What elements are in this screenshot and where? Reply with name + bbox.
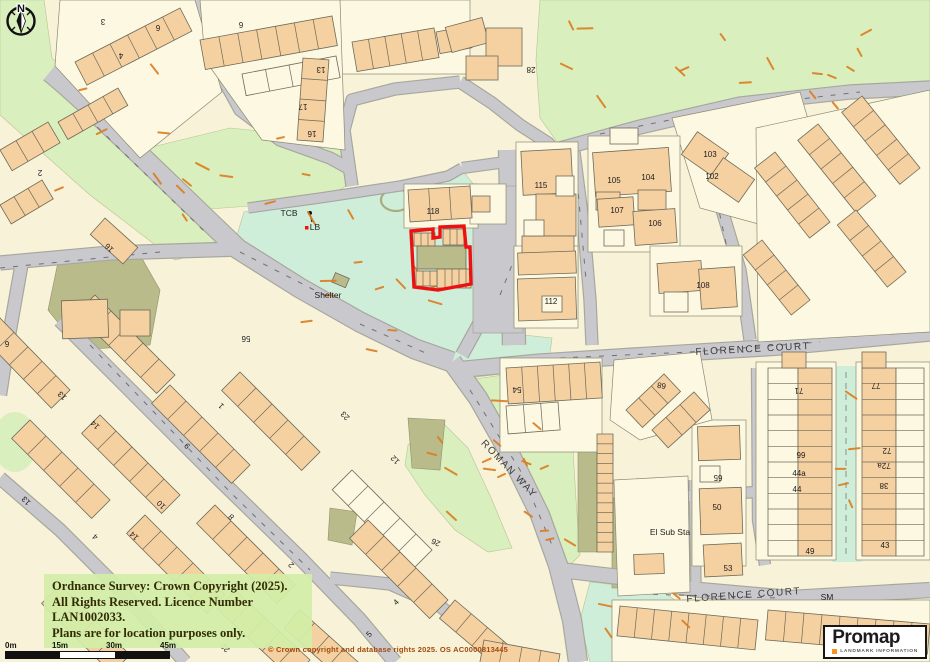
house-number-label: 6 <box>155 23 160 32</box>
house-number-label: 102 <box>705 172 719 181</box>
promap-logo: Promap LANDMARK INFORMATION <box>823 625 927 659</box>
scale-bar-labels: 0m 15m 30m 45m <box>5 641 185 650</box>
house-number-label: 50 <box>713 503 722 512</box>
feature-label: SM <box>821 592 834 602</box>
copyright-line-3: Plans are for location purposes only. <box>52 626 304 642</box>
house-number-label: 2 <box>37 168 42 177</box>
house-number-label: 17 <box>298 102 307 111</box>
lb-marker-icon <box>305 226 309 230</box>
house-number-label: 118 <box>427 207 440 216</box>
house-number-label: 108 <box>696 281 710 290</box>
copyright-line-1: Ordnance Survey: Crown Copyright (2025). <box>52 579 304 595</box>
house-number-label: 107 <box>610 206 624 215</box>
house-number-label: 54 <box>512 385 521 394</box>
house-number-label: 16 <box>307 129 316 138</box>
feature-label: Shelter <box>315 290 342 300</box>
house-number-label: 44a <box>792 469 806 478</box>
scale-tick-1: 15m <box>52 641 68 650</box>
scale-segment-black <box>6 652 60 658</box>
house-number-label: 28 <box>526 65 535 74</box>
scale-bar-segments <box>5 651 170 659</box>
copyright-notice: Ordnance Survey: Crown Copyright (2025).… <box>44 574 312 648</box>
scale-bar: 0m 15m 30m 45m <box>5 641 185 659</box>
scale-tick-2: 30m <box>106 641 122 650</box>
house-number-label: 6 <box>4 339 9 348</box>
compass-n-label: N <box>17 3 25 15</box>
house-number-label: 99 <box>797 451 806 460</box>
house-number-label: 53 <box>724 564 733 573</box>
house-number-label: 103 <box>703 150 717 159</box>
house-number-label: 112 <box>545 297 558 306</box>
house-number-label: 72a <box>877 461 891 470</box>
house-number-label: 3 <box>100 17 105 26</box>
house-number-label: 106 <box>648 219 662 228</box>
house-number-label: 71 <box>794 386 803 395</box>
promap-brand-text: Promap <box>832 628 918 648</box>
feature-label: TCB <box>281 208 298 218</box>
house-number-label: 65 <box>713 473 722 482</box>
house-number-label: 4 <box>118 51 123 60</box>
house-number-label: 49 <box>806 547 815 556</box>
house-number-label: 105 <box>607 176 621 185</box>
house-number-label: 6 <box>238 20 243 29</box>
footer-credit: © Crown copyright and database rights 20… <box>268 645 508 654</box>
house-number-label: 104 <box>641 173 655 182</box>
landmark-tagline: LANDMARK INFORMATION <box>840 649 918 654</box>
landmark-orange-square-icon <box>832 649 837 654</box>
scale-tick-0: 0m <box>5 641 17 650</box>
map-canvas[interactable]: 1181151051041031021071061121082813171634… <box>0 0 930 662</box>
house-number-label: 77 <box>871 381 880 390</box>
house-number-label: 43 <box>881 541 890 550</box>
house-number-label: 13 <box>316 65 325 74</box>
feature-label: El Sub Sta <box>650 527 690 537</box>
scale-segment-black <box>115 652 169 658</box>
house-number-label: 56 <box>241 334 250 343</box>
house-number-label: 44 <box>793 485 802 494</box>
scale-tick-3: 45m <box>160 641 176 650</box>
house-number-label: 72 <box>882 446 891 455</box>
selected-plot-boundary[interactable] <box>411 226 471 290</box>
house-number-label: 115 <box>535 181 548 190</box>
feature-label: LB <box>310 222 321 232</box>
copyright-line-2: All Rights Reserved. Licence Number LAN1… <box>52 595 304 626</box>
ordnance-survey-map[interactable]: 1181151051041031021071061121082813171634… <box>0 0 930 662</box>
house-number-label: 38 <box>879 481 888 490</box>
scale-segment-white <box>60 652 114 658</box>
